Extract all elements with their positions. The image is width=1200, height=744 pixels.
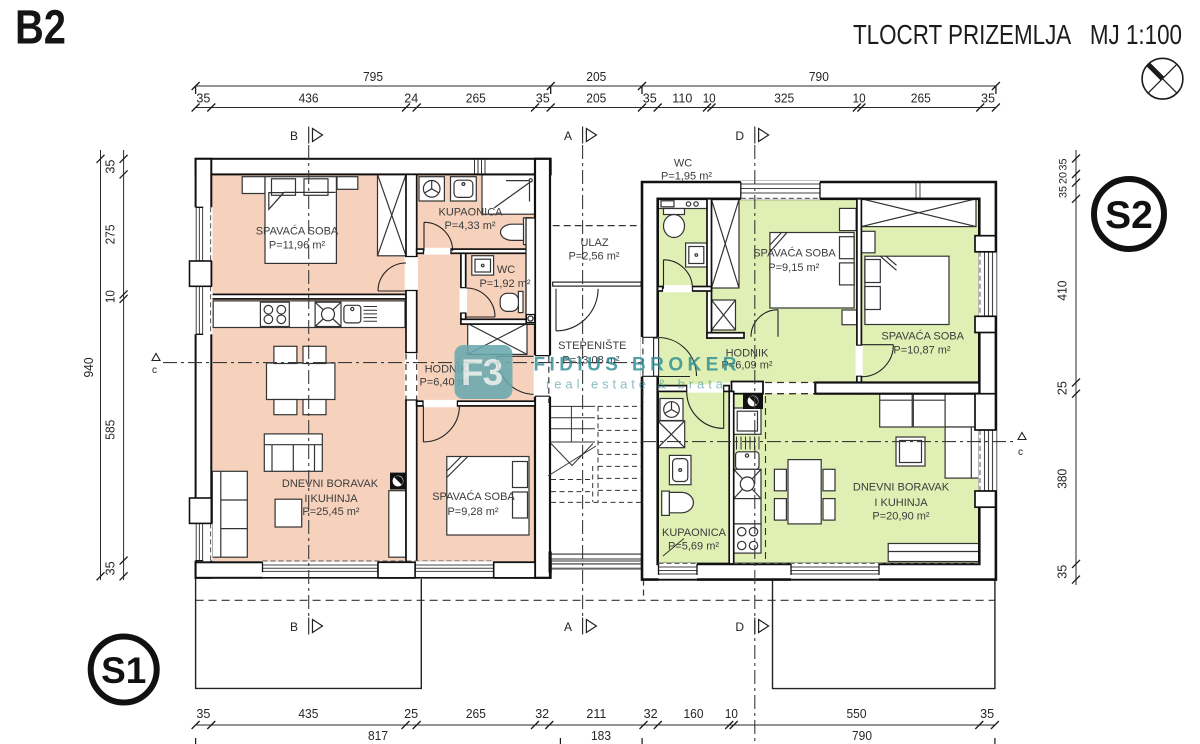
svg-text:795: 795 bbox=[363, 69, 383, 84]
svg-text:TLOCRT PRIZEMLJA MJ 1:100: TLOCRT PRIZEMLJA MJ 1:100 bbox=[853, 19, 1182, 50]
svg-text:205: 205 bbox=[586, 69, 606, 84]
svg-text:KUPAONICA: KUPAONICA bbox=[439, 207, 504, 219]
svg-text:KUPAONICA: KUPAONICA bbox=[662, 527, 727, 539]
svg-text:P=1,95 m²: P=1,95 m² bbox=[661, 171, 712, 183]
svg-text:STEPENIŠTE: STEPENIŠTE bbox=[558, 339, 626, 352]
svg-text:SPAVAĆA SOBA: SPAVAĆA SOBA bbox=[256, 225, 339, 238]
svg-text:25: 25 bbox=[1055, 381, 1070, 395]
svg-text:585: 585 bbox=[103, 420, 118, 440]
svg-text:325: 325 bbox=[774, 91, 794, 106]
svg-text:940: 940 bbox=[81, 358, 96, 378]
svg-text:790: 790 bbox=[809, 69, 829, 84]
svg-text:160: 160 bbox=[684, 706, 704, 721]
svg-text:B: B bbox=[290, 620, 298, 634]
svg-text:35: 35 bbox=[643, 91, 657, 106]
svg-text:P=5,69 m²: P=5,69 m² bbox=[668, 541, 719, 553]
svg-text:265: 265 bbox=[466, 91, 486, 106]
svg-text:183: 183 bbox=[591, 728, 611, 743]
svg-text:265: 265 bbox=[466, 706, 486, 721]
svg-text:P=1,92 m²: P=1,92 m² bbox=[479, 278, 530, 290]
svg-text:P=25,45 m²: P=25,45 m² bbox=[302, 506, 360, 518]
svg-text:275: 275 bbox=[103, 224, 118, 244]
svg-text:35: 35 bbox=[1055, 565, 1070, 579]
svg-text:20: 20 bbox=[1058, 172, 1070, 184]
svg-text:D: D bbox=[735, 129, 744, 143]
svg-text:P=2,56 m²: P=2,56 m² bbox=[568, 251, 619, 263]
svg-text:P=20,90 m²: P=20,90 m² bbox=[872, 511, 930, 523]
svg-text:265: 265 bbox=[911, 91, 931, 106]
svg-text:380: 380 bbox=[1055, 469, 1070, 489]
svg-text:S2: S2 bbox=[1105, 194, 1153, 237]
svg-text:35: 35 bbox=[196, 706, 210, 721]
svg-text:10: 10 bbox=[725, 706, 738, 721]
svg-text:817: 817 bbox=[368, 728, 388, 743]
svg-text:35: 35 bbox=[103, 160, 118, 174]
svg-text:A: A bbox=[564, 129, 572, 143]
svg-text:SPAVAĆA SOBA: SPAVAĆA SOBA bbox=[881, 329, 964, 342]
svg-text:I KUHINJA: I KUHINJA bbox=[874, 497, 928, 509]
svg-text:SPAVAĆA SOBA: SPAVAĆA SOBA bbox=[753, 247, 836, 260]
svg-text:c: c bbox=[1018, 447, 1023, 458]
svg-text:P=10,87 m²: P=10,87 m² bbox=[893, 344, 951, 356]
svg-text:SPAVAĆA SOBA: SPAVAĆA SOBA bbox=[432, 490, 515, 503]
svg-text:410: 410 bbox=[1055, 281, 1070, 301]
svg-text:10: 10 bbox=[853, 91, 866, 106]
svg-text:35: 35 bbox=[980, 706, 994, 721]
svg-text:110: 110 bbox=[672, 91, 692, 106]
svg-text:WC: WC bbox=[674, 158, 692, 170]
svg-text:25: 25 bbox=[404, 706, 418, 721]
svg-text:F3: F3 bbox=[461, 352, 503, 393]
svg-text:P=9,15 m²: P=9,15 m² bbox=[768, 262, 819, 274]
svg-text:211: 211 bbox=[586, 706, 606, 721]
svg-text:35: 35 bbox=[981, 91, 995, 106]
svg-text:WC: WC bbox=[497, 264, 515, 276]
svg-text:P=4,33 m²: P=4,33 m² bbox=[444, 220, 495, 232]
svg-text:DNEVNI BORAVAK: DNEVNI BORAVAK bbox=[853, 481, 950, 493]
svg-text:ULAZ: ULAZ bbox=[580, 237, 608, 249]
svg-text:35: 35 bbox=[536, 91, 550, 106]
svg-text:A: A bbox=[564, 620, 572, 634]
svg-text:435: 435 bbox=[298, 706, 318, 721]
svg-text:10: 10 bbox=[103, 290, 118, 303]
svg-text:436: 436 bbox=[299, 91, 319, 106]
svg-text:P=9,28 m²: P=9,28 m² bbox=[447, 506, 498, 518]
svg-text:DNEVNI BORAVAK: DNEVNI BORAVAK bbox=[282, 478, 379, 490]
svg-text:35: 35 bbox=[103, 561, 118, 575]
svg-text:S1: S1 bbox=[101, 650, 146, 691]
svg-text:790: 790 bbox=[852, 728, 872, 743]
svg-text:I KUHINJA: I KUHINJA bbox=[304, 493, 358, 505]
svg-text:FIDIUS BROKER: FIDIUS BROKER bbox=[534, 355, 737, 376]
svg-text:24: 24 bbox=[404, 91, 418, 106]
svg-text:D: D bbox=[735, 620, 744, 634]
svg-text:B2: B2 bbox=[15, 2, 66, 55]
svg-text:35: 35 bbox=[1058, 186, 1070, 198]
svg-text:550: 550 bbox=[847, 706, 867, 721]
svg-text:32: 32 bbox=[535, 706, 549, 721]
svg-text:35: 35 bbox=[196, 91, 210, 106]
svg-text:35: 35 bbox=[1058, 159, 1070, 171]
svg-text:10: 10 bbox=[703, 91, 716, 106]
svg-text:B: B bbox=[290, 129, 298, 143]
svg-text:c: c bbox=[152, 365, 157, 376]
svg-text:32: 32 bbox=[644, 706, 658, 721]
svg-text:P=11,96 m²: P=11,96 m² bbox=[269, 240, 326, 252]
svg-text:205: 205 bbox=[586, 91, 606, 106]
